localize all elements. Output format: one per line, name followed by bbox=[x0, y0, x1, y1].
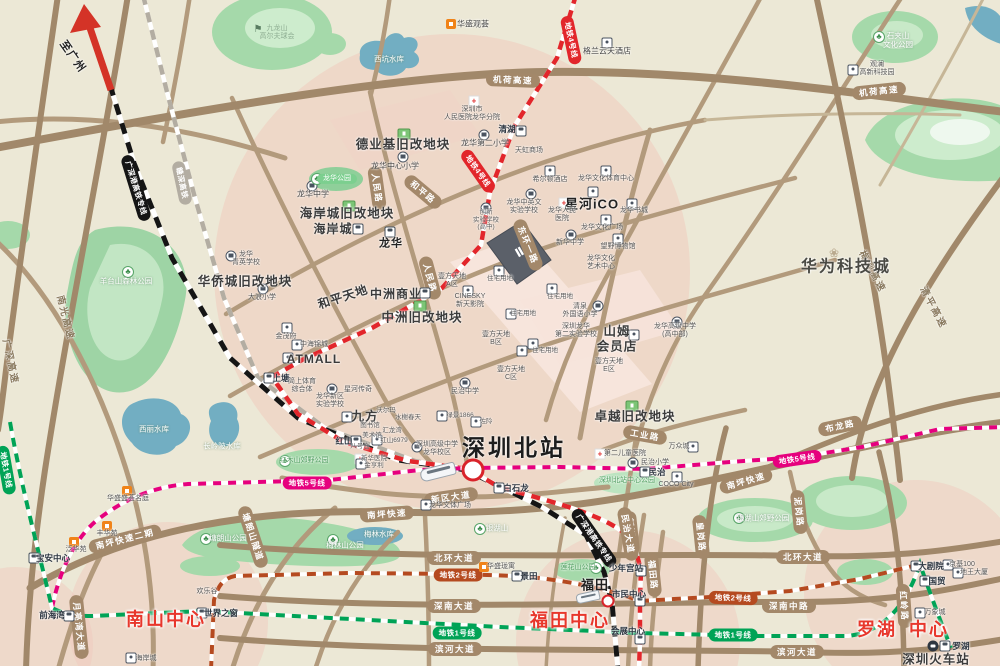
poi-label: 龙华高级中学 (高中部) bbox=[654, 323, 696, 340]
flower-icon bbox=[828, 247, 840, 259]
station-ring-icon bbox=[602, 595, 615, 608]
poi-label: 深圳龙华 第二实验学校 bbox=[555, 323, 597, 340]
poi-label: 卓越旧改地块 bbox=[594, 410, 675, 425]
metro-line-badge: 地铁2号线 bbox=[434, 569, 483, 582]
luohu-center-label: 中心 bbox=[909, 619, 949, 640]
luohu-label: 罗湖 bbox=[857, 619, 897, 640]
road-label: 深南大道 bbox=[427, 599, 481, 613]
poi-label: 地王大厦 bbox=[960, 569, 988, 577]
futian-center-label: 福田中心 bbox=[530, 610, 610, 631]
poi-label: 梅林山公园 bbox=[326, 542, 364, 551]
poi-label: ATMALL bbox=[287, 352, 341, 366]
poi-label: 深圳北站中心公园 bbox=[599, 477, 655, 485]
poi-label: 龙华文体广场 bbox=[429, 502, 471, 510]
poi-label: 海岸城 bbox=[313, 222, 352, 236]
poi-label: 壹方天地 E区 bbox=[595, 358, 623, 375]
poi-label: 汇龙湾 bbox=[382, 427, 402, 435]
poi-label: 红山6979 bbox=[380, 437, 407, 445]
road-label: 机荷高速 bbox=[486, 72, 540, 88]
metro-line-badge: 地铁5号线 bbox=[283, 477, 332, 490]
poi-label: 创新 实验学校 (高中) bbox=[473, 209, 499, 232]
metro-line-badge: 地铁2号线 bbox=[708, 591, 757, 606]
station-label: 市民中心 bbox=[612, 589, 646, 599]
poi-label: 住宅用地 bbox=[487, 275, 513, 283]
poi-label: CINESKY 新天影院 bbox=[455, 293, 486, 310]
map-canvas[interactable]: 南山中心福田中心罗湖中心机荷高速机荷高速南坪快速南坪快速南坪快速二期新区大道北环… bbox=[0, 0, 1000, 666]
poi-label: 简上体育 综合体 bbox=[288, 378, 316, 395]
park-tree-icon bbox=[474, 523, 486, 535]
nanshan-center-label: 南山中心 bbox=[126, 609, 206, 630]
poi-icon bbox=[545, 166, 556, 177]
poi-label: 金茂府 bbox=[276, 333, 297, 341]
poi-label: 观澜 高新科技园 bbox=[860, 61, 895, 78]
metro-line-badge: 地铁1号线 bbox=[433, 627, 482, 640]
poi-label: 第二儿童医院 bbox=[604, 450, 646, 458]
poi-label: 华盛盛荟名庭 bbox=[107, 495, 149, 503]
poi-label: 龙华公园 bbox=[317, 174, 357, 184]
poi-label: 住宅用地 bbox=[547, 293, 573, 301]
poi-label: 格兰云天酒店 bbox=[583, 46, 631, 55]
poi-label: 华侨城旧改地块 bbox=[198, 275, 293, 290]
shenzhen-north-station-label: 深圳北站 bbox=[462, 434, 566, 461]
poi-label: 羊台山森林公园 bbox=[100, 278, 153, 287]
metro-station-icon bbox=[385, 227, 396, 238]
poi-label: 深圳市 人民医院龙华分院 bbox=[444, 106, 500, 123]
poi-label: 星河传奇 bbox=[344, 386, 372, 394]
poi-label: 民治小学 bbox=[641, 459, 669, 467]
railway-circle-icon bbox=[928, 641, 939, 652]
poi-label: 龙华书城 bbox=[620, 207, 648, 215]
road-label: 滨河大道 bbox=[428, 642, 482, 656]
poi-label: 绿景1866 bbox=[446, 412, 473, 420]
station-label: 龙华 bbox=[379, 238, 403, 251]
poi-label: 华盛珑寓 bbox=[487, 563, 515, 571]
poi-label: 民治中学 bbox=[451, 388, 479, 396]
poi-label: 清泉 外国语小学 bbox=[563, 303, 598, 320]
station-label: 世界之窗 bbox=[204, 608, 238, 618]
poi-label: 华盛观荟 bbox=[457, 19, 489, 28]
station-label: 大剧院 bbox=[918, 561, 944, 571]
poi-label: 龙华中学 bbox=[297, 189, 329, 198]
poi-label: 丰华苑 bbox=[97, 530, 118, 538]
poi-label: 长岭陂水库 bbox=[203, 443, 241, 452]
station-label: 白石龙 bbox=[503, 483, 529, 493]
poi-label: 万众城 bbox=[669, 443, 690, 451]
poi-label: 西丽水库 bbox=[139, 426, 169, 435]
shenzhen-railway-station-label: 深圳火车站 bbox=[902, 653, 970, 666]
station-label: 宝安中心 bbox=[36, 553, 70, 563]
school-icon bbox=[460, 378, 471, 389]
poi-label: COCO City bbox=[659, 481, 694, 489]
poi-label: 海岸城旧改地块 bbox=[300, 207, 395, 222]
poi-label: 塘朗山公园 bbox=[209, 535, 247, 544]
station-label: 民治 bbox=[648, 467, 665, 477]
poi-label: 八号仓 bbox=[350, 443, 370, 451]
poi-label: 山姆 会员店 bbox=[597, 324, 638, 354]
road-label: 深南中路 bbox=[762, 599, 816, 613]
station-label: 景田 bbox=[520, 571, 537, 581]
poi-label: 佐阾 bbox=[480, 418, 493, 426]
poi-label: 图书馆 bbox=[360, 422, 380, 430]
poi-label: 中洲商业 bbox=[370, 287, 422, 301]
poi-label: 龙华中英文 实验学校 bbox=[507, 199, 542, 216]
poi-label: 龙华中心小学 bbox=[371, 161, 419, 170]
station-label: 上塘 bbox=[272, 373, 289, 383]
station-label: 国贸 bbox=[928, 576, 945, 586]
poi-label: 海岸城 bbox=[136, 655, 157, 663]
poi-label: 龙华文化 艺术中心 bbox=[587, 255, 615, 272]
poi-label: 望野博物馆 bbox=[601, 243, 636, 251]
poi-label: 中海锦城 bbox=[300, 341, 328, 349]
poi-label: 龙华新区 实验学校 bbox=[316, 393, 344, 410]
poi-icon bbox=[517, 346, 528, 357]
poi-label: 金亨利 bbox=[364, 462, 384, 470]
station-ring-icon bbox=[462, 459, 485, 482]
metro-station-icon bbox=[516, 126, 527, 137]
station-label: 罗湖 bbox=[952, 641, 969, 651]
poi-label: 龙华第二小学 bbox=[461, 138, 509, 147]
poi-label: 壹方天地 A区 bbox=[438, 273, 466, 290]
poi-label: 住宅用地 bbox=[532, 347, 558, 355]
poi-label: 希尔顿酒店 bbox=[533, 176, 568, 184]
poi-label: 泛华苑 bbox=[66, 546, 87, 554]
poi-label: 壹方天地 C区 bbox=[497, 366, 525, 383]
poi-label: 梅林水库 bbox=[364, 531, 394, 540]
poi-label: 德业基旧改地块 bbox=[356, 138, 451, 153]
station-label: 清湖 bbox=[498, 124, 515, 134]
road-label: 滨河大道 bbox=[770, 645, 824, 659]
metro-station-icon bbox=[940, 641, 951, 652]
poi-label: 龙华 青英学校 bbox=[232, 251, 260, 268]
station-label: 前海湾 bbox=[39, 610, 65, 620]
school-icon bbox=[628, 458, 639, 469]
poi-label: 西坑水库 bbox=[374, 56, 404, 65]
poi-label: 银湖山 bbox=[486, 525, 509, 534]
poi-label: 红木山郊野公园 bbox=[280, 457, 329, 465]
poi-label: 万象城 bbox=[925, 609, 946, 617]
poi-label: 新华中学 bbox=[556, 239, 584, 247]
poi-label: 莲花山公园 bbox=[561, 564, 596, 572]
metro-line-badge: 地铁1号线 bbox=[709, 629, 758, 642]
huawei-tech-city-label: 华为科技城 bbox=[801, 259, 891, 278]
poi-label: 天虹商场 bbox=[515, 147, 543, 155]
road-label: 北环大道 bbox=[427, 551, 481, 565]
poi-label: 石夹山 文化公园 bbox=[883, 32, 913, 50]
poi-label: 京基100 bbox=[949, 561, 975, 569]
poi-label: 住宅用地 bbox=[510, 310, 536, 318]
station-label: 少年宫站 bbox=[609, 563, 643, 573]
poi-label: 深圳高级中学 龙华校区 bbox=[416, 441, 458, 458]
station-label: 会展中心 bbox=[611, 626, 645, 636]
poi-label: 中洲旧改地块 bbox=[381, 311, 462, 326]
poi-label: 欢乐谷 bbox=[197, 588, 218, 596]
road-label: 北环大道 bbox=[776, 550, 830, 564]
poi-label: 龙华人民 医院 bbox=[548, 207, 576, 224]
poi-label: 九龙山 高尔夫球会 bbox=[260, 25, 295, 42]
poi-label: 沃尔玛 bbox=[376, 407, 396, 415]
poi-label: 美术馆 bbox=[362, 432, 382, 440]
metro-station-icon bbox=[353, 224, 364, 235]
guangzhou-arrow-icon bbox=[70, 4, 111, 90]
residence-icon bbox=[446, 19, 456, 29]
poi-icon bbox=[848, 65, 859, 76]
poi-label: 龙华文化广场 bbox=[581, 224, 623, 232]
poi-label: 龙华文化体育中心 bbox=[578, 175, 634, 183]
poi-icon bbox=[282, 323, 293, 334]
poi-label: 壹方天地 B区 bbox=[482, 331, 510, 348]
poi-label: 银湖山郊野公园 bbox=[737, 515, 790, 524]
poi-label: 水榭春天 bbox=[395, 414, 421, 422]
poi-label: 大浪小学 bbox=[248, 294, 276, 302]
